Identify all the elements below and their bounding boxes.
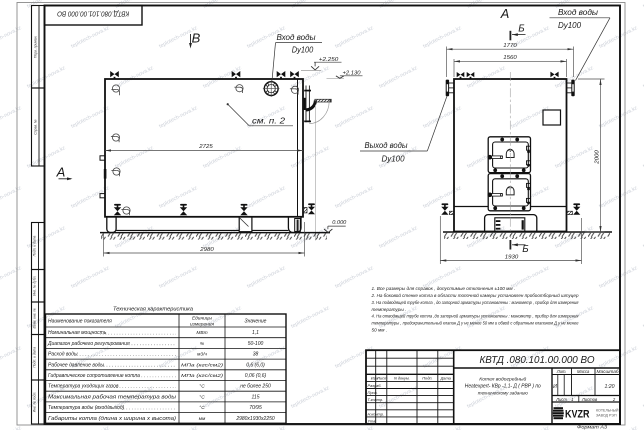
svg-text:teplotech-nova.kz: teplotech-nova.kz [0, 185, 23, 210]
svg-text:teplotech-nova.kz: teplotech-nova.kz [114, 145, 155, 170]
svg-text:teplotech-nova.kz: teplotech-nova.kz [510, 425, 551, 430]
svg-text:teplotech-nova.kz: teplotech-nova.kz [114, 65, 155, 90]
svg-text:teplotech-nova.kz: teplotech-nova.kz [290, 305, 331, 330]
svg-text:teplotech-nova.kz: teplotech-nova.kz [246, 425, 287, 430]
svg-text:Подп. и дата: Подп. и дата [33, 236, 37, 257]
svg-text:teplotech-nova.kz: teplotech-nova.kz [290, 145, 331, 170]
svg-text:Инв. № дубл.: Инв. № дубл. [33, 276, 37, 296]
svg-text:Техническая характеристика: Техническая характеристика [113, 306, 194, 312]
svg-text:0,6 (6,0): 0,6 (6,0) [246, 362, 265, 368]
svg-text:°С: °С [199, 394, 205, 400]
svg-text:Единицы: Единицы [192, 316, 213, 322]
svg-text:teplotech-nova.kz: teplotech-nova.kz [334, 185, 375, 210]
svg-text:teplotech-nova.kz: teplotech-nova.kz [0, 265, 23, 290]
svg-text:Наименование показателя: Наименование показателя [48, 319, 112, 325]
svg-text:teplotech-nova.kz: teplotech-nova.kz [290, 385, 331, 410]
svg-text:teplotech-nova.kz: teplotech-nova.kz [510, 265, 551, 290]
svg-text:0.000: 0.000 [332, 220, 346, 226]
svg-text:Габариты котла (длина х ширина: Габариты котла (длина х ширина х высота) [48, 416, 176, 422]
svg-text:°С: °С [199, 384, 205, 390]
svg-text:А: А [56, 165, 66, 180]
svg-text:2: 2 [612, 397, 616, 402]
svg-text:техническому заданию: техническому заданию [478, 391, 528, 397]
svg-text:МПа (кгс/см2): МПа (кгс/см2) [181, 362, 224, 368]
svg-text:38: 38 [253, 352, 259, 358]
svg-text:КОТЕЛЬНЫЙ: КОТЕЛЬНЫЙ [596, 409, 619, 413]
svg-text:teplotech-nova.kz: teplotech-nova.kz [246, 185, 287, 210]
svg-text:teplotech-nova.kz: teplotech-nova.kz [378, 225, 419, 250]
svg-text:teplotech-nova.kz: teplotech-nova.kz [334, 105, 375, 130]
svg-text:Масса: Масса [577, 369, 590, 374]
svg-text:КВТД.080.101.00.000 ВО: КВТД.080.101.00.000 ВО [57, 9, 129, 18]
svg-text:Dy100: Dy100 [382, 154, 406, 163]
svg-text:Т.контр.: Т.контр. [368, 397, 384, 402]
svg-text:1: 1 [571, 397, 573, 402]
svg-text:Подп. и дата: Подп. и дата [33, 347, 37, 368]
svg-text:teplotech-nova.kz: teplotech-nova.kz [158, 265, 199, 290]
svg-text:мм: мм [199, 417, 206, 422]
svg-text:Температура уходящих газов: Температура уходящих газов [48, 384, 119, 390]
svg-text:Формат А3: Формат А3 [577, 425, 608, 430]
svg-text:Утв.: Утв. [368, 418, 377, 423]
svg-text:%: % [200, 341, 205, 347]
svg-text:температуры , предохранительны: температуры , предохранительный клапан Д… [372, 319, 579, 325]
svg-text:teplotech-nova.kz: teplotech-nova.kz [158, 185, 199, 210]
svg-text:ЗАВОД РЭП: ЗАВОД РЭП [596, 414, 617, 418]
svg-text:Значение: Значение [245, 319, 267, 325]
svg-text:Вход воды: Вход воды [558, 8, 598, 17]
svg-text:Масштаб: Масштаб [597, 369, 620, 374]
svg-text:А: А [500, 6, 510, 21]
svg-text:Лит.: Лит. [556, 369, 567, 374]
svg-text:teplotech-nova.kz: teplotech-nova.kz [598, 105, 639, 130]
svg-text:+2.130: +2.130 [343, 71, 361, 77]
svg-text:0,06 (0,6): 0,06 (0,6) [245, 373, 267, 379]
svg-text:KVZR: KVZR [565, 409, 590, 421]
svg-text:N докум.: N докум. [394, 375, 410, 380]
svg-text:Пров.: Пров. [368, 390, 378, 395]
svg-text:1,1: 1,1 [252, 330, 259, 336]
svg-text:Гидравлическое сопротивление к: Гидравлическое сопротивление котла [48, 373, 140, 379]
svg-text:Рабочее давление воды: Рабочее давление воды [48, 362, 104, 368]
svg-text:Вход воды: Вход воды [277, 33, 316, 42]
svg-text:Б: Б [522, 244, 529, 255]
svg-text:teplotech-nova.kz: teplotech-nova.kz [422, 25, 463, 50]
svg-text:1:20: 1:20 [604, 384, 614, 390]
svg-text:teplotech-nova.kz: teplotech-nova.kz [158, 105, 199, 130]
svg-text:teplotech-nova.kz: teplotech-nova.kz [554, 145, 595, 170]
svg-text:teplotech-nova.kz: teplotech-nova.kz [334, 265, 375, 290]
svg-text:И: И [553, 384, 557, 390]
svg-text:Heatexpert- КВр -1,1- Д ( РВР: Heatexpert- КВр -1,1- Д ( РВР ) по [465, 384, 541, 390]
svg-text:Листов: Листов [581, 397, 598, 402]
svg-text:2980х1930х2250: 2980х1930х2250 [235, 416, 275, 422]
svg-text:2000: 2000 [595, 150, 601, 165]
svg-text:Лист: Лист [376, 375, 388, 380]
svg-text:1930: 1930 [505, 254, 519, 260]
svg-text:teplotech-nova.kz: teplotech-nova.kz [158, 425, 199, 430]
svg-text:Подп.: Подп. [422, 375, 432, 380]
svg-text:Лист: Лист [555, 397, 567, 402]
svg-text:МВт: МВт [196, 330, 207, 336]
svg-text:teplotech-nova.kz: teplotech-nova.kz [246, 265, 287, 290]
svg-text:teplotech-nova.kz: teplotech-nova.kz [334, 25, 375, 50]
svg-text:50 мм .: 50 мм . [372, 327, 388, 332]
svg-text:Б: Б [518, 23, 525, 34]
svg-text:2. На боковой стенке котла в: 2. На боковой стенке котла в области топ… [371, 292, 579, 298]
svg-text:не более 250: не более 250 [240, 384, 271, 390]
svg-text:В: В [192, 31, 201, 46]
svg-text:1560: 1560 [503, 55, 517, 61]
svg-text:50-100: 50-100 [248, 341, 264, 347]
svg-text:teplotech-nova.kz: teplotech-nova.kz [378, 65, 419, 90]
svg-text:Котел водогрейный: Котел водогрейный [479, 376, 526, 383]
svg-text:Диапазон рабочего регулировани: Диапазон рабочего регулирования [47, 341, 130, 347]
svg-text:1770: 1770 [503, 43, 517, 49]
svg-text:Инв. № подл.: Инв. № подл. [33, 392, 37, 413]
svg-text:Расход воды: Расход воды [48, 352, 78, 358]
svg-text:Dy100: Dy100 [292, 46, 314, 55]
svg-text:teplotech-nova.kz: teplotech-nova.kz [598, 265, 639, 290]
svg-text:2980: 2980 [199, 247, 214, 253]
svg-text:Номинальная мощность: Номинальная мощность [48, 330, 107, 336]
svg-text:Максимальная рабочая температу: Максимальная рабочая температура воды [48, 394, 176, 400]
svg-text:teplotech-nova.kz: teplotech-nova.kz [466, 65, 507, 90]
svg-text:teplotech-nova.kz: teplotech-nova.kz [70, 25, 111, 50]
svg-text:м3/ч: м3/ч [197, 352, 207, 358]
svg-text:Справ. №: Справ. № [33, 119, 37, 135]
svg-text:teplotech-nova.kz: teplotech-nova.kz [598, 345, 639, 370]
svg-text:Н.контр.: Н.контр. [368, 411, 384, 416]
svg-text:°С: °С [199, 405, 205, 411]
svg-text:1. Все размеры для справок ,: 1. Все размеры для справок , допустимые … [372, 286, 516, 291]
svg-text:teplotech-nova.kz: teplotech-nova.kz [422, 425, 463, 430]
svg-text:Температура воды (вход/выход): Температура воды (вход/выход) [48, 405, 125, 411]
svg-text:2725: 2725 [198, 144, 213, 150]
svg-text:teplotech-nova.kz: teplotech-nova.kz [0, 425, 23, 430]
svg-text:4. На отводящей трубе котла ,: 4. На отводящей трубе котла ,до запорной… [372, 313, 579, 319]
svg-text:температуры .: температуры . [372, 307, 407, 312]
svg-text:teplotech-nova.kz: teplotech-nova.kz [0, 345, 23, 370]
svg-text:измерения: измерения [190, 322, 214, 327]
svg-text:Перв. примен.: Перв. примен. [33, 35, 37, 58]
svg-text:teplotech-nova.kz: teplotech-nova.kz [70, 425, 111, 430]
svg-text:Дата: Дата [440, 375, 452, 380]
svg-text:КВТД .080.101.00.000 ВО: КВТД .080.101.00.000 ВО [480, 354, 595, 366]
svg-text:3. На подводящей трубе котла: 3. На подводящей трубе котла , до запорн… [372, 299, 579, 305]
svg-text:МПа (кгс/см2): МПа (кгс/см2) [181, 373, 224, 379]
svg-text:+2.250: +2.250 [319, 57, 339, 63]
svg-text:см. п. 2: см. п. 2 [252, 116, 285, 126]
svg-text:Выход воды: Выход воды [365, 141, 408, 150]
svg-text:teplotech-nova.kz: teplotech-nova.kz [334, 425, 375, 430]
svg-text:Dy100: Dy100 [558, 21, 582, 30]
svg-text:Разраб.: Разраб. [368, 383, 382, 388]
svg-text:115: 115 [252, 394, 260, 400]
svg-text:teplotech-nova.kz: teplotech-nova.kz [70, 265, 111, 290]
svg-text:teplotech-nova.kz: teplotech-nova.kz [26, 65, 67, 90]
svg-text:teplotech-nova.kz: teplotech-nova.kz [0, 105, 23, 130]
svg-text:teplotech-nova.kz: teplotech-nova.kz [598, 185, 639, 210]
svg-text:Взам. инв. №: Взам. инв. № [33, 308, 37, 329]
svg-text:teplotech-nova.kz: teplotech-nova.kz [202, 385, 243, 410]
svg-text:teplotech-nova.kz: teplotech-nova.kz [510, 105, 551, 130]
svg-text:teplotech-nova.kz: teplotech-nova.kz [0, 25, 23, 50]
svg-text:70/95: 70/95 [249, 405, 262, 411]
